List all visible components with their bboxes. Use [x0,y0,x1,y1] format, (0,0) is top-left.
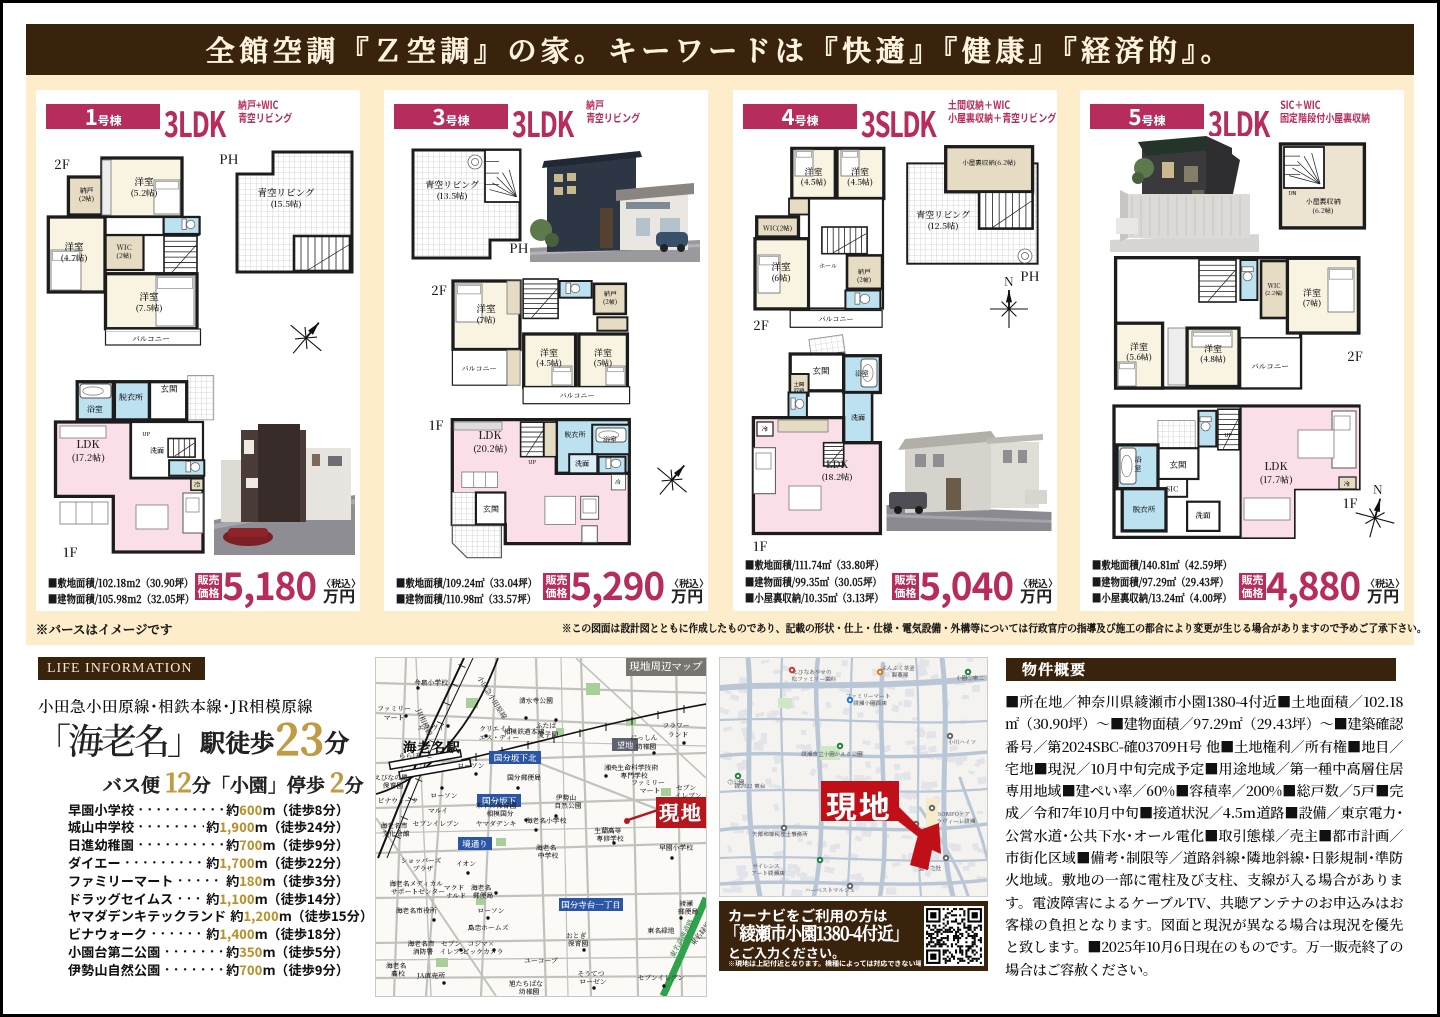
svg-text:DN: DN [1288,190,1296,197]
svg-text:LDK: LDK [1264,458,1288,474]
svg-text:冷: 冷 [194,480,201,489]
svg-text:(20.2帖): (20.2帖) [473,442,507,455]
svg-text:洋室: 洋室 [64,239,83,253]
svg-text:脱衣所: 脱衣所 [1133,504,1156,515]
svg-text:洋室: 洋室 [771,259,790,273]
svg-text:島忠ホームズ: 島忠ホームズ [468,922,509,932]
svg-text:保育園: 保育園 [383,780,405,790]
svg-text:小園①東二: 小園①東二 [955,674,984,682]
svg-text:(4.5帖): (4.5帖) [536,358,562,369]
svg-text:マート: マート [384,712,404,722]
svg-text:(4.8帖): (4.8帖) [1200,354,1226,365]
svg-text:WIC(2帖): WIC(2帖) [763,224,792,233]
svg-text:セブンイレブン: セブンイレブン [638,972,685,982]
svg-text:ランド: ランド [668,729,689,739]
svg-text:海老名小学校: 海老名小学校 [526,815,567,825]
svg-text:(6帖): (6帖) [771,272,791,284]
svg-text:プラザ: プラザ [413,863,434,873]
svg-text:(18.2帖): (18.2帖) [821,471,852,483]
svg-text:マート: マート [640,785,660,795]
svg-text:洗面: 洗面 [575,459,589,469]
svg-text:(2帖): (2帖) [603,297,617,306]
svg-text:相模国分: 相模国分 [486,808,513,818]
svg-text:幼稚園: 幼稚園 [518,986,541,996]
svg-text:郵便局: 郵便局 [473,890,494,900]
svg-text:綾瀬市立小園かえる公園: 綾瀬市立小園かえる公園 [801,750,863,758]
svg-text:綾瀬小園西店: 綾瀬小園西店 [853,699,887,707]
svg-text:清水寺公園: 清水寺公園 [519,695,554,705]
svg-text:ホール: ホール [819,261,837,270]
svg-text:(7帖): (7帖) [476,314,496,326]
svg-text:LDK: LDK [76,436,100,452]
svg-text:冷: 冷 [1343,479,1350,488]
svg-text:国分郵便局: 国分郵便局 [507,772,541,782]
svg-text:ビナウォーク: ビナウォーク [378,795,419,805]
svg-text:綾2022 東台: 綾2022 東台 [734,782,765,790]
svg-text:LDK: LDK [478,427,502,443]
svg-text:玄関: 玄関 [160,383,178,395]
svg-text:矢部和雄税理士事務所: 矢部和雄税理士事務所 [752,830,808,838]
svg-text:(4.5帖): (4.5帖) [847,177,873,188]
svg-text:UP: UP [142,430,150,438]
svg-text:浴室: 浴室 [855,369,869,379]
svg-text:青空リビング: 青空リビング [258,185,315,199]
svg-text:洗面: 洗面 [1196,510,1212,521]
svg-text:東名緑地: 東名緑地 [646,925,674,935]
svg-text:早園小学校: 早園小学校 [658,842,693,852]
svg-text:玄関: 玄関 [812,365,830,377]
svg-text:ローソン: ローソン [458,760,485,770]
svg-text:ローゼン: ローゼン [579,976,606,986]
svg-text:バルコニー: バルコニー [818,315,854,325]
svg-text:(2帖): (2帖) [79,194,94,203]
svg-text:ローソン: ローソン [431,790,458,800]
svg-text:(7.5帖): (7.5帖) [135,302,162,314]
svg-text:浴室: 浴室 [87,404,103,415]
svg-text:ナルド: ナルド [446,890,466,900]
svg-text:文化会館: 文化会館 [382,828,409,838]
svg-text:室: 室 [1135,464,1142,474]
svg-text:SIC: SIC [1165,484,1179,495]
svg-text:(4.7帖): (4.7帖) [60,252,87,264]
svg-text:浴室: 浴室 [603,435,617,445]
svg-text:(17.7帖): (17.7帖) [1259,473,1292,486]
svg-text:ハーベストマルシェ: ハーベストマルシェ [805,886,855,894]
svg-text:マルイ: マルイ [428,805,448,815]
svg-text:ラヴィーレ綾瀬: ラヴィーレ綾瀬 [937,817,976,825]
svg-text:(5帖): (5帖) [594,358,613,369]
svg-text:海老名駅: 海老名駅 [403,736,461,756]
svg-text:(6.2帖): (6.2帖) [1312,206,1333,215]
svg-text:(5.6帖): (5.6帖) [1126,352,1152,363]
svg-text:サポートセンター: サポートセンター [391,886,445,896]
svg-text:脱衣所: 脱衣所 [119,392,143,403]
svg-text:ローソン: ローソン [478,905,505,915]
svg-text:洋室: 洋室 [139,289,158,303]
svg-text:(7帖): (7帖) [1303,298,1322,309]
svg-text:消防署: 消防署 [413,946,434,956]
svg-text:(2帖): (2帖) [116,251,131,260]
svg-text:ヤマダデンキ: ヤマダデンキ [476,818,517,828]
svg-text:N: N [1004,273,1014,290]
svg-text:バルコニー: バルコニー [1251,361,1289,372]
svg-text:冷: 冷 [761,424,768,433]
svg-text:国分寺台一丁目: 国分寺台一丁目 [561,899,621,911]
svg-text:脱衣所: 脱衣所 [565,430,587,440]
svg-text:収納: 収納 [793,387,804,394]
svg-text:幼稚園: 幼稚園 [635,741,658,751]
svg-text:N: N [1373,481,1383,498]
svg-text:(15.5帖): (15.5帖) [270,198,301,210]
svg-text:現地: 現地 [658,797,703,826]
svg-text:洗面: 洗面 [150,446,164,456]
svg-text:(13.5帖): (13.5帖) [436,190,467,202]
svg-text:松ファミリー歯科: 松ファミリー歯科 [792,675,837,683]
svg-text:冷: 冷 [614,478,621,486]
svg-text:イレブン: イレブン [675,790,702,800]
svg-text:相模鉄道本線: 相模鉄道本線 [504,726,545,736]
svg-text:バルコニー: バルコニー [559,391,595,401]
svg-text:保育園: 保育園 [568,938,590,948]
svg-text:(4.5帖): (4.5帖) [801,177,827,188]
svg-text:専修学校: 専修学校 [596,833,623,843]
svg-text:玄関: 玄関 [482,504,499,515]
svg-text:(12.5帖): (12.5帖) [927,220,958,232]
svg-text:洋室: 洋室 [476,301,495,315]
svg-text:玄関: 玄関 [1169,459,1187,471]
svg-text:UP: UP [528,458,536,466]
svg-text:セブンイレブン: セブンイレブン [413,818,460,828]
svg-text:郵便局: 郵便局 [678,906,699,916]
svg-text:小川ハイツ: 小川ハイツ [947,738,976,746]
svg-text:アート綾瀬店: アート綾瀬店 [751,869,785,877]
svg-text:ユーコープ: ユーコープ [524,955,558,965]
svg-text:高校: 高校 [390,968,405,978]
svg-text:中学校: 中学校 [538,850,559,860]
svg-text:海老名市役所: 海老名市役所 [396,905,438,915]
svg-text:UP: UP [1224,431,1232,439]
svg-text:製菓房: 製菓房 [891,671,909,679]
svg-text:JA直売所: JA直売所 [416,970,446,980]
svg-text:(5.2帖): (5.2帖) [130,187,158,199]
svg-text:イオン: イオン [456,858,476,868]
svg-text:バルコニー: バルコニー [461,364,497,374]
svg-text:今泉小学校: 今泉小学校 [414,677,448,687]
svg-text:洗面: 洗面 [851,413,865,423]
svg-text:(17.2帖): (17.2帖) [71,451,104,464]
svg-text:バルコニー: バルコニー [132,334,170,345]
svg-text:境通り: 境通り [462,838,488,850]
svg-text:LDK: LDK [826,457,849,472]
svg-text:自然公園: 自然公園 [554,800,582,810]
svg-text:(2帖): (2帖) [857,275,871,284]
svg-text:国分坂下北: 国分坂下北 [494,752,537,764]
svg-text:洋室: 洋室 [134,174,153,188]
svg-text:ビックカメラ: ビックカメラ [463,946,504,956]
svg-text:(2.2帖): (2.2帖) [1265,289,1283,297]
svg-text:小屋裏収納(6.2帖): 小屋裏収納(6.2帖) [962,158,1016,167]
